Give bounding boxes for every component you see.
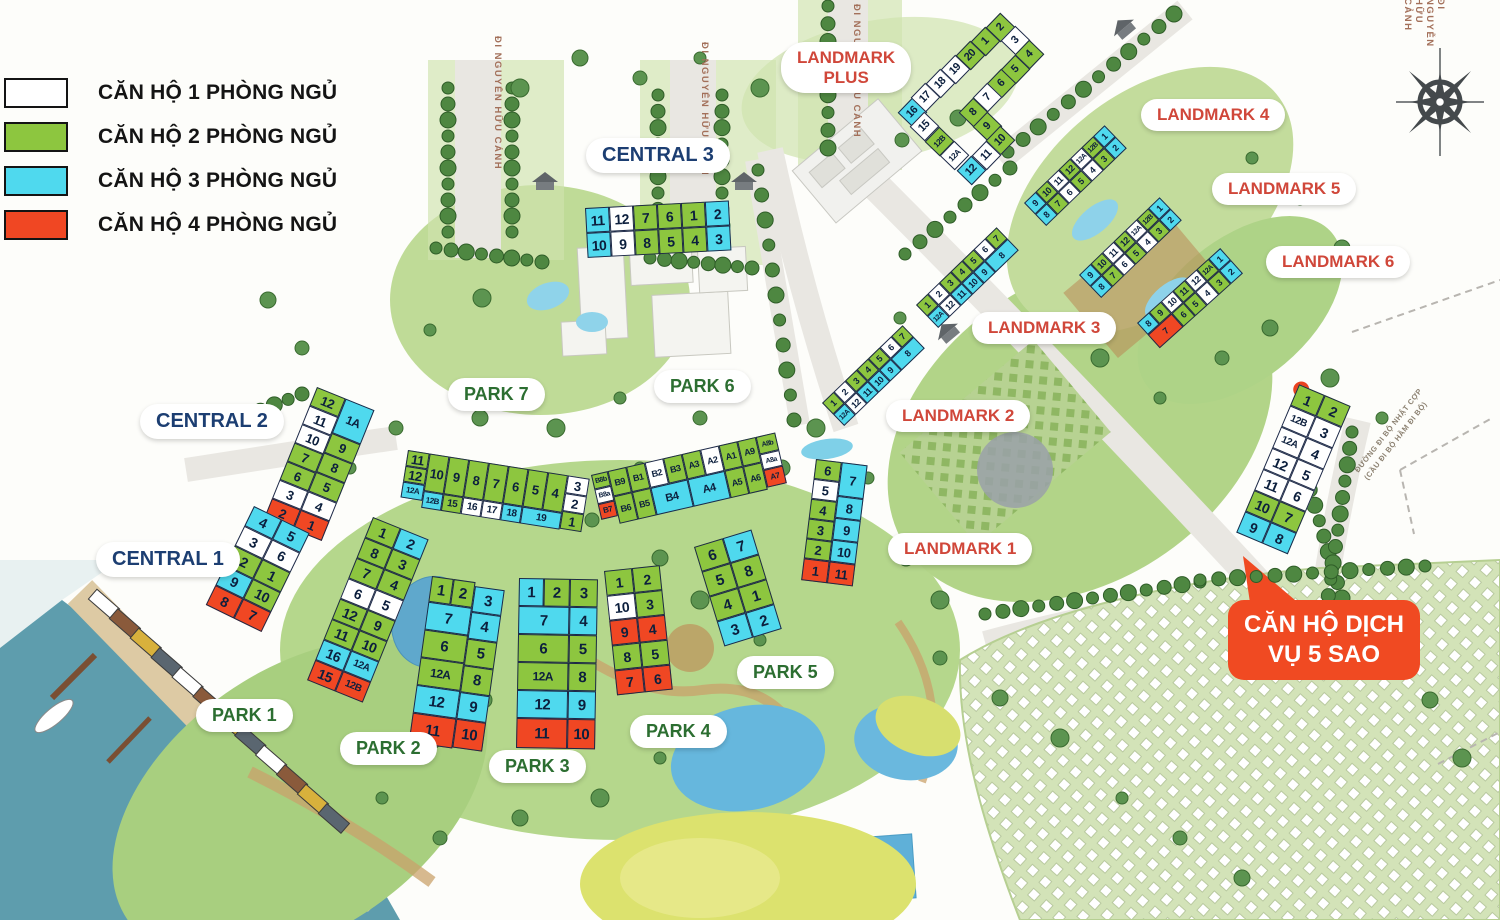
area-label-park-1: PARK 1 xyxy=(196,699,293,732)
legend: CĂN HỘ 1 PHÒNG NGỦCĂN HỘ 2 PHÒNG NGỦCĂN … xyxy=(4,78,337,254)
unit-park-3-1: 1 xyxy=(519,578,544,606)
unit-central-3-7: 7 xyxy=(633,204,658,230)
area-label-park-5: PARK 5 xyxy=(737,656,834,689)
area-label-landmark-1: LANDMARK 1 xyxy=(888,533,1032,565)
unit-park-4-1: 1 xyxy=(604,568,634,596)
unit-park-7-15: 15 xyxy=(441,494,463,514)
unit-central-3-8: 8 xyxy=(634,229,659,255)
area-label-landmark-3: LANDMARK 3 xyxy=(972,312,1116,344)
unit-park-4-3: 3 xyxy=(634,590,664,618)
unit-park-3-6: 6 xyxy=(518,634,569,663)
area-label-park-4: PARK 4 xyxy=(630,715,727,748)
legend-label-2: CĂN HỘ 2 PHÒNG NGỦ xyxy=(98,125,337,149)
area-label-park-3: PARK 3 xyxy=(489,750,586,783)
unit-park-4-2: 2 xyxy=(632,565,662,593)
unit-park-4-10: 10 xyxy=(607,593,637,621)
five-star-badge: CĂN HỘ DỊCH VỤ 5 SAO xyxy=(1228,600,1420,680)
unit-landmark-1-grid-10: 10 xyxy=(830,540,858,565)
unit-park-3-9: 9 xyxy=(568,691,596,719)
legend-item-3: CĂN HỘ 3 PHÒNG NGỦ xyxy=(4,166,337,196)
area-label-park-7: PARK 7 xyxy=(448,378,545,411)
legend-item-1: CĂN HỘ 1 PHÒNG NGỦ xyxy=(4,78,337,108)
unit-central-3-3: 3 xyxy=(706,225,731,251)
legend-label-1: CĂN HỘ 1 PHÒNG NGỦ xyxy=(98,81,337,105)
badge-line1: CĂN HỘ DỊCH xyxy=(1228,610,1420,640)
area-label-landmark-4: LANDMARK 4 xyxy=(1141,99,1285,131)
unit-central-3-1: 1 xyxy=(681,202,706,228)
unit-park-3-8: 8 xyxy=(568,663,596,691)
legend-swatch-4-bedroom xyxy=(4,210,68,240)
area-label-landmark-2: LANDMARK 2 xyxy=(886,400,1030,432)
unit-park-3-4: 4 xyxy=(569,607,597,635)
unit-park-2-8: 8 xyxy=(460,665,493,696)
legend-item-4: CĂN HỘ 4 PHÒNG NGỦ xyxy=(4,210,337,240)
area-label-park-2: PARK 2 xyxy=(340,732,437,765)
unit-park-4-5: 5 xyxy=(640,640,670,668)
legend-item-2: CĂN HỘ 2 PHÒNG NGỦ xyxy=(4,122,337,152)
road-label-1: ĐI NGUYỄN HỮU CẢNH xyxy=(492,36,503,186)
unit-park-2-9: 9 xyxy=(456,692,489,723)
unit-central-3-9: 9 xyxy=(610,230,635,256)
unit-central-3-4: 4 xyxy=(682,227,707,253)
unit-park-3-3: 3 xyxy=(570,579,598,607)
area-label-central-2: CENTRAL 2 xyxy=(140,404,284,439)
unit-park-2-3: 3 xyxy=(471,586,504,616)
unit-park-2-4: 4 xyxy=(468,612,501,643)
unit-park-7-12A: 12A xyxy=(400,482,424,501)
unit-park-2-10: 10 xyxy=(452,719,486,752)
area-label-central-3: CENTRAL 3 xyxy=(586,138,730,173)
unit-central-3-2: 2 xyxy=(705,200,730,226)
legend-swatch-2-bedroom xyxy=(4,122,68,152)
unit-landmark-1-grid-8: 8 xyxy=(835,496,863,521)
unit-park-7-17: 17 xyxy=(480,500,502,520)
unit-central-3-10: 10 xyxy=(586,232,611,258)
road-label-4: ĐI NGUYỄN HỮU CẢNH xyxy=(1402,0,1446,46)
unit-park-4-6: 6 xyxy=(642,665,672,693)
unit-park-3-11: 11 xyxy=(516,718,568,749)
unit-park-3-5: 5 xyxy=(569,635,597,663)
unit-central-3-11: 11 xyxy=(585,207,610,233)
unit-central-3-5: 5 xyxy=(658,228,683,254)
area-label-landmark-5: LANDMARK 5 xyxy=(1212,173,1356,205)
unit-park-2-5: 5 xyxy=(464,639,497,670)
legend-swatch-1-bedroom xyxy=(4,78,68,108)
area-label-park-6: PARK 6 xyxy=(654,370,751,403)
unit-landmark-1-grid-9: 9 xyxy=(832,518,860,543)
unit-central-3-6: 6 xyxy=(657,203,682,229)
area-label-landmark-6: LANDMARK 6 xyxy=(1266,246,1410,278)
unit-park-3-12: 12 xyxy=(517,690,568,719)
legend-label-4: CĂN HỘ 4 PHÒNG NGỦ xyxy=(98,213,337,237)
unit-park-4-4: 4 xyxy=(637,615,667,643)
unit-park-3-12A: 12A xyxy=(517,662,568,691)
unit-park-4-8: 8 xyxy=(612,643,642,671)
unit-park-7-16: 16 xyxy=(461,497,483,517)
unit-park-7-18: 18 xyxy=(500,503,522,523)
unit-park-4-9: 9 xyxy=(609,618,639,646)
site-map: CĂN HỘ 1 PHÒNG NGỦCĂN HỘ 2 PHÒNG NGỦCĂN … xyxy=(0,0,1500,920)
unit-landmark-1-grid-1: 1 xyxy=(801,558,829,583)
unit-landmark-1-grid-11: 11 xyxy=(827,561,855,586)
legend-swatch-3-bedroom xyxy=(4,166,68,196)
unit-central-3-12: 12 xyxy=(609,205,634,231)
unit-park-4-7: 7 xyxy=(614,668,644,696)
area-label-landmark-plus: LANDMARK PLUS xyxy=(781,42,911,93)
unit-park-3-7: 7 xyxy=(518,606,569,635)
unit-landmark-1-grid-7: 7 xyxy=(838,462,868,499)
compass-icon xyxy=(1396,46,1484,158)
legend-label-3: CĂN HỘ 3 PHÒNG NGỦ xyxy=(98,169,337,193)
unit-park-3-10: 10 xyxy=(567,719,596,749)
unit-park-7-12B: 12B xyxy=(421,491,443,511)
badge-line2: VỤ 5 SAO xyxy=(1228,640,1420,670)
unit-park-7-1: 1 xyxy=(560,511,585,532)
unit-park-3-2: 2 xyxy=(544,578,570,606)
area-label-central-1: CENTRAL 1 xyxy=(96,542,240,577)
